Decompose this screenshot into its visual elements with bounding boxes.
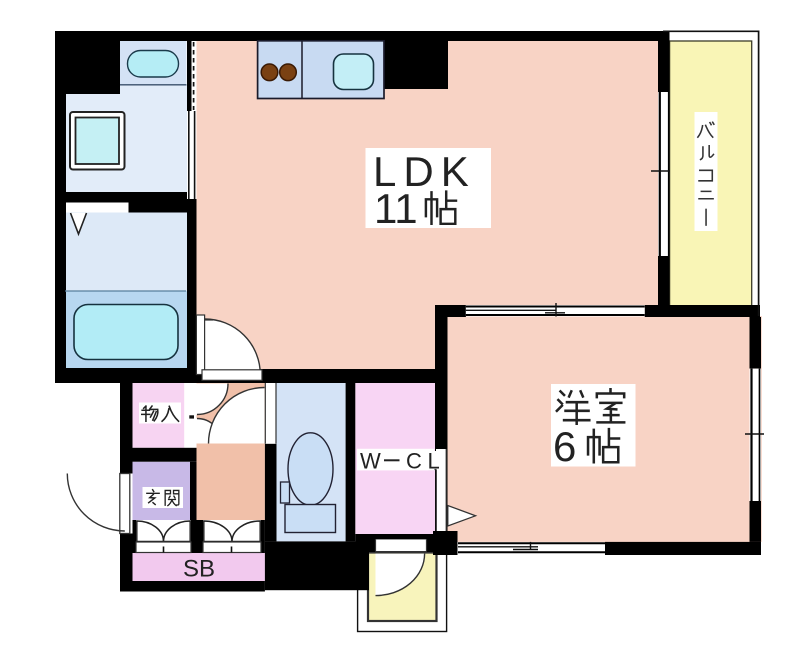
svg-text:L: L xyxy=(428,449,440,474)
svg-text:11: 11 xyxy=(374,185,418,232)
svg-text:SB: SB xyxy=(183,556,215,583)
svg-text:C: C xyxy=(406,449,422,474)
svg-text:6: 6 xyxy=(553,423,576,470)
svg-text:W: W xyxy=(360,449,381,474)
